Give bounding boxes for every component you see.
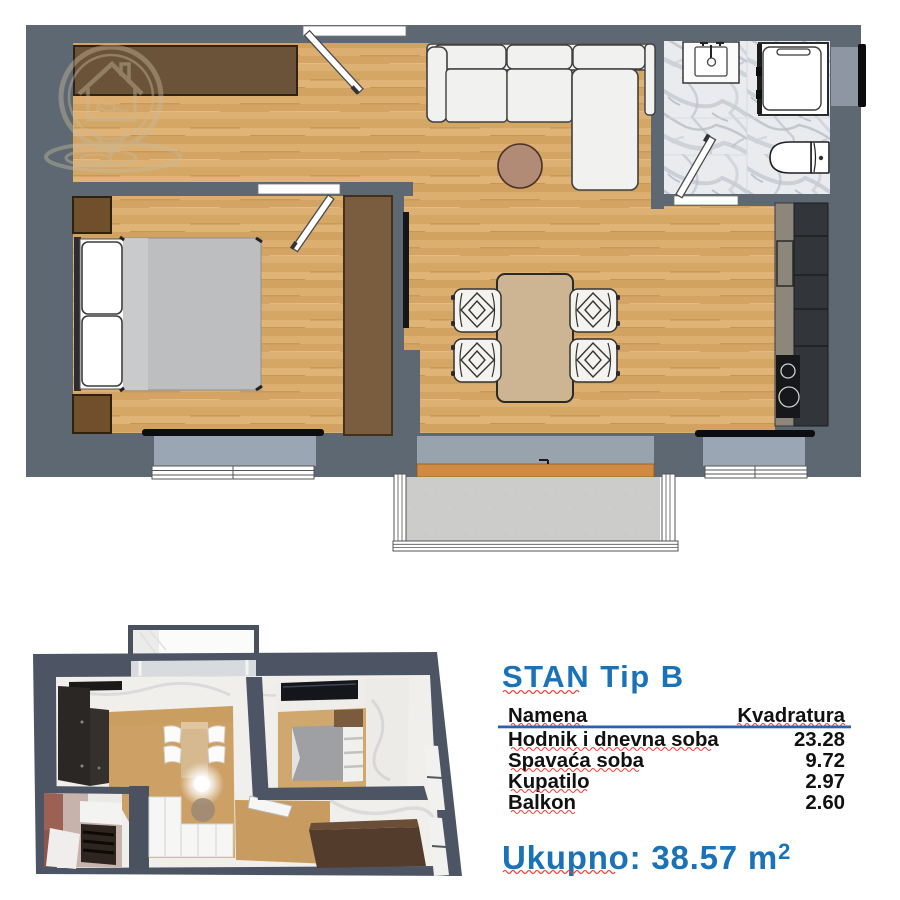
svg-text:2.97: 2.97	[805, 771, 845, 793]
svg-text:23.28: 23.28	[794, 729, 845, 751]
svg-text:2.60: 2.60	[805, 792, 845, 814]
svg-text:9.72: 9.72	[805, 750, 845, 772]
svg-text:Balkon: Balkon	[508, 792, 576, 814]
svg-text:STAN Tip B: STAN Tip B	[502, 659, 685, 694]
